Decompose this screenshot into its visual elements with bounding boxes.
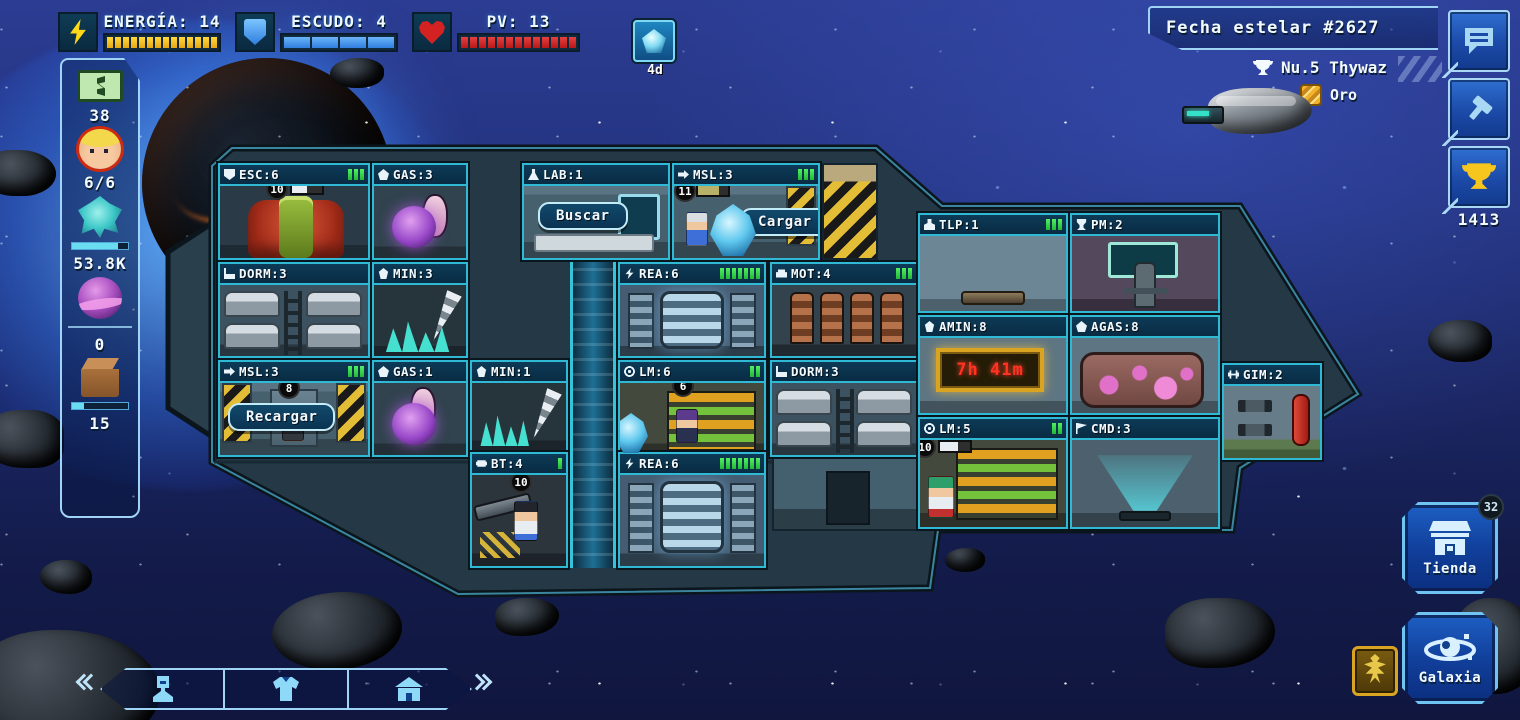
room-body [374, 285, 466, 356]
room-gas-1[interactable]: GAS:1 [372, 360, 468, 457]
top-hud: ENERGÍA: 14 ESCUDO: 4 PV: 13 [58, 12, 580, 52]
bunk-bed [776, 421, 832, 447]
crew-member[interactable] [514, 501, 538, 541]
asteroid [0, 410, 64, 468]
reactor-core [660, 481, 724, 553]
room-label: LAB:1 [543, 167, 583, 182]
crystal-deposit [476, 412, 532, 446]
room-body [374, 383, 466, 455]
shield-label: ESCUDO: 4 [280, 12, 398, 31]
crew-menu-button[interactable] [102, 670, 225, 708]
dumbbell [1238, 424, 1272, 436]
room-label: TLP:1 [939, 217, 979, 232]
room-lm-5[interactable]: LM:5 10 [918, 417, 1068, 529]
room-body [620, 285, 764, 356]
shirt-icon [269, 675, 303, 703]
room-label: DORM:3 [791, 364, 839, 379]
gas-orb [392, 403, 436, 445]
punching-bag [1292, 394, 1310, 446]
hologram [1097, 455, 1193, 511]
room-level-bars [348, 169, 364, 180]
teleport-pad [961, 291, 1025, 305]
enemy-ship[interactable] [1182, 84, 1312, 138]
room-msl-top[interactable]: MSL:3 11 Cargar [672, 163, 820, 260]
supply-value: 15 [89, 414, 110, 433]
room-label: GIM:2 [1243, 367, 1283, 382]
laser-machinery [956, 448, 1058, 520]
crew-member[interactable] [676, 409, 698, 443]
menu-chevron-left [78, 676, 92, 702]
build-button[interactable] [1448, 78, 1510, 140]
room-label: BT:4 [491, 456, 523, 471]
shield-stat-icon [235, 12, 275, 52]
room-label: REA:6 [639, 266, 679, 281]
mineral-value: 53.8K [73, 254, 126, 273]
search-button[interactable]: Buscar [538, 202, 628, 230]
asteroid [40, 560, 92, 594]
room-label: REA:6 [639, 456, 679, 471]
ladder [284, 291, 302, 355]
outfit-menu-button[interactable] [225, 670, 348, 708]
room-body: 6 [620, 383, 764, 455]
room-rea-a[interactable]: REA:6 [618, 262, 766, 358]
room-header: DORM:3 [220, 264, 368, 285]
alien-creature[interactable] [248, 200, 344, 258]
room-body: 10 [472, 475, 566, 566]
crew-member[interactable] [928, 476, 954, 518]
room-label: MSL:3 [239, 364, 279, 379]
room-body: 7h 41m [920, 338, 1066, 413]
room-rea-b[interactable]: REA:6 [618, 452, 766, 568]
stardate-text: Fecha estelar #2627 [1166, 18, 1379, 38]
room-body: 10 [220, 186, 368, 258]
engine-cylinder [880, 292, 904, 344]
engine-cylinder [790, 292, 814, 344]
room-label: LM:6 [639, 364, 671, 379]
engine-cylinder [820, 292, 844, 344]
room-body [1072, 236, 1218, 311]
supply-crate-icon [79, 358, 121, 398]
menu-chevron-right [478, 676, 492, 702]
hazard-panel [822, 163, 878, 260]
reactor-column [730, 293, 756, 349]
flask-icon [528, 169, 539, 180]
room-label: LM:5 [939, 421, 971, 436]
gas-tank [1080, 352, 1204, 408]
room-level-bars [720, 268, 760, 279]
room-level-bars [896, 268, 912, 279]
hp-bar [457, 33, 580, 52]
level-badge: 10 [920, 440, 936, 458]
mining-drill [526, 388, 562, 442]
room-header: REA:6 [620, 454, 764, 475]
room-body [1072, 338, 1218, 413]
room-header: LAB:1 [524, 165, 668, 186]
shop-badge: 32 [1478, 494, 1504, 520]
enemy-ship-engine [1182, 106, 1224, 124]
crew-count: 6/6 [84, 173, 116, 192]
galaxy-button[interactable]: Galaxia [1402, 612, 1498, 704]
room-label: CMD:3 [1091, 421, 1131, 436]
level-badge: 11 [674, 186, 696, 202]
room-body [374, 186, 466, 258]
hp-stat: PV: 13 [412, 12, 580, 52]
room-label: GAS:3 [393, 167, 433, 182]
progress-pill [290, 186, 324, 195]
energy-icon [58, 12, 98, 52]
bolt-icon [624, 268, 635, 279]
room-level-bars [1046, 219, 1062, 230]
room-header: GAS:1 [374, 362, 466, 383]
room-agas[interactable]: AGAS:8 [1070, 315, 1220, 415]
room-body [772, 383, 916, 455]
room-gas-3[interactable]: GAS:3 [372, 163, 468, 260]
asteroid [1165, 598, 1275, 668]
bed-icon [224, 268, 235, 279]
alliance-button[interactable] [1352, 646, 1398, 696]
crew-icon [79, 129, 121, 169]
game-screen: { "hud": { "energy": { "label": "ENERGÍA… [0, 0, 1520, 720]
galaxy-label: Galaxia [1419, 670, 1482, 686]
room-label: DORM:3 [239, 266, 287, 281]
bunk-bed [306, 323, 362, 349]
reactor-column [628, 483, 654, 553]
bunk-bed [224, 291, 280, 317]
buff-slot: 4d [633, 20, 677, 78]
room-header: GAS:3 [374, 165, 466, 186]
room-dorm-a[interactable]: DORM:3 [218, 262, 370, 358]
room-body [220, 285, 368, 356]
shop-icon [1427, 519, 1473, 559]
corridor [772, 455, 918, 531]
room-header: TLP:1 [920, 215, 1066, 236]
room-level-bars [348, 366, 364, 377]
hammer-icon [1463, 93, 1495, 125]
hologram-projector [1119, 511, 1171, 521]
asteroid [495, 598, 559, 636]
room-label: MIN:1 [491, 364, 531, 379]
hp-stat-icon [412, 12, 452, 52]
buff-duration: 4d [633, 63, 677, 78]
mineral-gauge [71, 242, 129, 250]
room-label: ESC:6 [239, 167, 279, 182]
heart-icon [419, 20, 445, 44]
engine-cylinder [850, 292, 874, 344]
progress-pill [938, 440, 972, 453]
reactor-core [660, 291, 724, 349]
shield-icon [224, 169, 235, 180]
energy-stat: ENERGÍA: 14 [58, 12, 221, 52]
rooms-menu-button[interactable] [349, 670, 470, 708]
room-lab[interactable]: LAB:1 Buscar [522, 163, 670, 260]
person-icon [148, 674, 178, 704]
asteroid [330, 58, 384, 88]
room-header: MSL:3 [674, 165, 818, 186]
room-header: AMIN:8 [920, 317, 1066, 338]
room-header: GIM:2 [1224, 365, 1320, 386]
room-body [920, 236, 1066, 311]
opponent-name: Nu.5 Thywaz [1281, 58, 1387, 77]
gas-orb [392, 206, 436, 248]
room-esc[interactable]: ESC:6 10 [218, 163, 370, 260]
trophy-icon [1076, 219, 1087, 230]
gas-icon [78, 277, 122, 319]
countdown-sign: 7h 41m [936, 348, 1044, 392]
recharge-button[interactable]: Recargar [228, 403, 335, 431]
opponent-row: Nu.5 Thywaz [1200, 58, 1440, 77]
room-label: MIN:3 [393, 266, 433, 281]
mineral-icon [78, 196, 122, 238]
room-level-bars [1052, 423, 1062, 434]
crystal [620, 413, 648, 453]
room-dorm-b[interactable]: DORM:3 [770, 360, 918, 457]
gas-icon [1076, 321, 1087, 332]
chat-button[interactable] [1448, 10, 1510, 72]
room-header: REA:6 [620, 264, 764, 285]
room-cmd[interactable]: CMD:3 [1070, 417, 1220, 529]
room-body: Buscar [524, 186, 668, 258]
room-label: GAS:1 [393, 364, 433, 379]
room-level-bars [558, 458, 562, 469]
league-name: Oro [1330, 86, 1357, 104]
ladder [836, 389, 854, 453]
room-level-bars [750, 366, 760, 377]
room-lm-6[interactable]: LM:6 6 [618, 360, 766, 457]
person-icon [924, 219, 935, 230]
mineral-icon [924, 321, 935, 332]
progress-pill [696, 186, 730, 197]
room-header: MSL:3 [220, 362, 368, 383]
crystal-buff-button[interactable] [633, 20, 675, 62]
room-bt[interactable]: BT:4 10 [470, 452, 568, 568]
room-body: 10 [920, 440, 1066, 527]
room-header: ESC:6 [220, 165, 368, 186]
lightning-icon [67, 19, 89, 45]
room-tlp[interactable]: TLP:1 [918, 213, 1068, 313]
gas-icon [378, 366, 389, 377]
room-body [772, 285, 916, 356]
mineral-icon [378, 268, 389, 279]
missile-icon [224, 366, 235, 377]
gas-icon [378, 169, 389, 180]
room-body [1224, 386, 1320, 458]
reactor-column [730, 483, 756, 553]
room-header: CMD:3 [1072, 419, 1218, 440]
bunk-bed [224, 323, 280, 349]
room-label: MOT:4 [791, 266, 831, 281]
energy-bar [103, 33, 221, 52]
room-header: PM:2 [1072, 215, 1218, 236]
bolt-icon [624, 458, 635, 469]
room-body [620, 475, 764, 566]
room-body [472, 383, 566, 450]
room-header: AGAS:8 [1072, 317, 1218, 338]
laser-icon [924, 423, 935, 434]
shop-label: Tienda [1423, 561, 1477, 577]
countdown-timer: 7h 41m [956, 360, 1023, 380]
room-label: AGAS:8 [1091, 319, 1139, 334]
bed-icon [776, 366, 787, 377]
room-label: PM:2 [1091, 217, 1123, 232]
alliance-crest-icon [1362, 654, 1388, 688]
bunk-bed [856, 421, 912, 447]
asteroid [945, 548, 985, 572]
flag-icon [1076, 423, 1087, 434]
chat-bubble-icon [1463, 26, 1495, 56]
room-pm[interactable]: PM:2 [1070, 213, 1220, 313]
shield-icon [244, 19, 266, 45]
room-header: MIN:3 [374, 264, 466, 285]
room-header: LM:5 [920, 419, 1066, 440]
house-icon [393, 675, 425, 703]
trophy-score: 1413 [1448, 210, 1510, 229]
room-header: LM:6 [620, 362, 764, 383]
room-level-bars [798, 169, 814, 180]
missile-icon [678, 169, 689, 180]
laser-icon [624, 366, 635, 377]
room-label: MSL:3 [693, 167, 733, 182]
credits-value: 38 [89, 106, 110, 125]
room-label: AMIN:8 [939, 319, 987, 334]
room-gim[interactable]: GIM:2 [1222, 363, 1322, 460]
lab-bench [534, 234, 654, 252]
room-min-1[interactable]: MIN:1 [470, 360, 568, 452]
asteroid [0, 150, 56, 196]
room-header: DORM:3 [772, 362, 916, 383]
engine-icon [776, 268, 787, 279]
trophy-icon [1462, 161, 1496, 193]
level-badge: 10 [510, 475, 532, 493]
room-header: MOT:4 [772, 264, 916, 285]
mineral-icon [476, 366, 487, 377]
command-chair [1134, 262, 1156, 308]
bunk-bed [306, 291, 362, 317]
room-header: MIN:1 [472, 362, 566, 383]
room-msl-left[interactable]: MSL:3 8 Recargar [218, 360, 370, 457]
divider [68, 326, 132, 328]
credits-icon [77, 70, 123, 102]
bunk-bed [856, 389, 912, 415]
hp-label: PV: 13 [457, 12, 580, 31]
resource-panel: 38 6/6 53.8K 0 15 [60, 58, 140, 518]
room-header: BT:4 [472, 454, 566, 475]
room-body [1072, 440, 1218, 527]
room-level-bars [720, 458, 760, 469]
dumbbell [1238, 400, 1272, 412]
battery-icon [476, 458, 487, 469]
trophy-button[interactable] [1448, 146, 1510, 208]
crystal-icon [642, 29, 666, 53]
bottom-menu [100, 668, 472, 710]
room-amin[interactable]: AMIN:8 7h 41m [918, 315, 1068, 415]
supply-gauge [71, 402, 129, 410]
bunk-bed [776, 389, 832, 415]
room-body: 8 Recargar [220, 383, 368, 455]
gas-value: 0 [95, 335, 106, 354]
asteroid [1428, 320, 1492, 362]
asteroid [272, 592, 402, 670]
shield-bar [280, 33, 398, 52]
crew-member[interactable] [686, 212, 708, 246]
shield-stat: ESCUDO: 4 [235, 12, 398, 52]
stardate-panel: Fecha estelar #2627 [1148, 6, 1438, 50]
trophy-icon [1253, 59, 1273, 77]
energy-label: ENERGÍA: 14 [103, 12, 221, 31]
galaxy-icon [1424, 630, 1476, 668]
room-body: 11 Cargar [674, 186, 818, 258]
room-min-3[interactable]: MIN:3 [372, 262, 468, 358]
reactor-column [628, 293, 654, 349]
room-mot[interactable]: MOT:4 [770, 262, 918, 358]
dumbbell-icon [1228, 369, 1239, 380]
